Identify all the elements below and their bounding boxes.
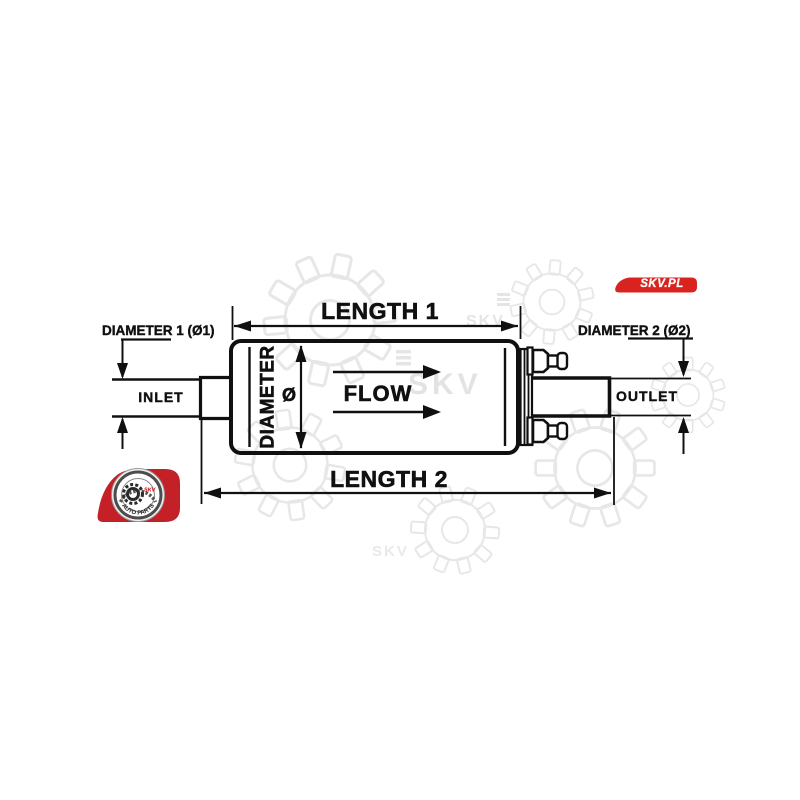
length1-arrow-left — [234, 321, 251, 332]
length1-arrow-right — [501, 321, 518, 332]
length2-arrow-left — [204, 488, 221, 499]
body-diameter-arrow-down — [296, 432, 307, 449]
label-flow: FLOW — [338, 383, 418, 405]
diameter1-arrow-down — [117, 363, 128, 379]
fuel-pump-diagram-page: SKV SKV SKV — [0, 0, 800, 800]
label-diameter-vertical: DIAMETER — [259, 340, 279, 455]
label-diameter-symbol: Ø — [279, 386, 299, 404]
label-length1: LENGTH 1 — [270, 300, 490, 323]
inlet-collar — [201, 378, 232, 419]
brand-badge-label: SKV.PL — [627, 278, 697, 290]
terminal-bottom — [528, 418, 568, 445]
label-outlet: OUTLET — [614, 389, 680, 403]
flow-arrow-top-head — [423, 365, 441, 379]
terminal-top — [528, 348, 568, 375]
logo-skv-text: SKV — [144, 488, 157, 494]
length2-arrow-right — [594, 488, 611, 499]
body-diameter-arrow-up — [296, 345, 307, 362]
label-diameter2: DIAMETER 2 (Ø2) — [578, 324, 691, 338]
brand-logo: AUTO PARTS SKV — [95, 466, 185, 526]
label-length2: LENGTH 2 — [279, 468, 499, 491]
label-inlet: INLET — [126, 390, 196, 404]
outlet-tube-thick — [532, 378, 610, 416]
label-diameter1: DIAMETER 1 (Ø1) — [102, 324, 215, 338]
diameter2-arrow-up — [678, 417, 689, 433]
flow-arrow-bottom-head — [423, 405, 441, 419]
diameter1-arrow-up — [117, 417, 128, 433]
brand-badge: SKV.PL — [613, 276, 699, 294]
diameter2-arrow-down — [678, 361, 689, 377]
